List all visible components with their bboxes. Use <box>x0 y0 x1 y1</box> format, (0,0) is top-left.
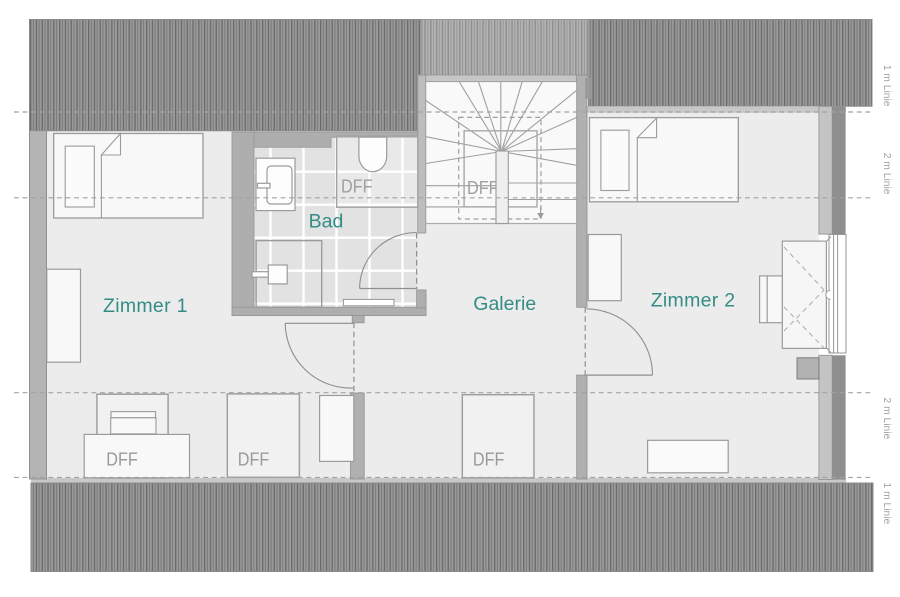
svg-text:Galerie: Galerie <box>473 293 536 315</box>
svg-text:Bad: Bad <box>309 211 344 233</box>
svg-text:2 m Linie: 2 m Linie <box>881 153 892 195</box>
svg-text:Zimmer 2: Zimmer 2 <box>651 289 736 311</box>
svg-text:Zimmer 1: Zimmer 1 <box>103 295 188 317</box>
svg-text:DFF: DFF <box>473 448 505 469</box>
svg-text:1 m Linie: 1 m Linie <box>881 483 892 525</box>
svg-text:DFF: DFF <box>238 448 269 469</box>
svg-text:1 m Linie: 1 m Linie <box>881 65 892 107</box>
svg-text:DFF: DFF <box>467 177 499 198</box>
svg-text:DFF: DFF <box>106 448 138 469</box>
svg-text:2 m Linie: 2 m Linie <box>881 398 892 440</box>
svg-text:DFF: DFF <box>341 175 373 196</box>
